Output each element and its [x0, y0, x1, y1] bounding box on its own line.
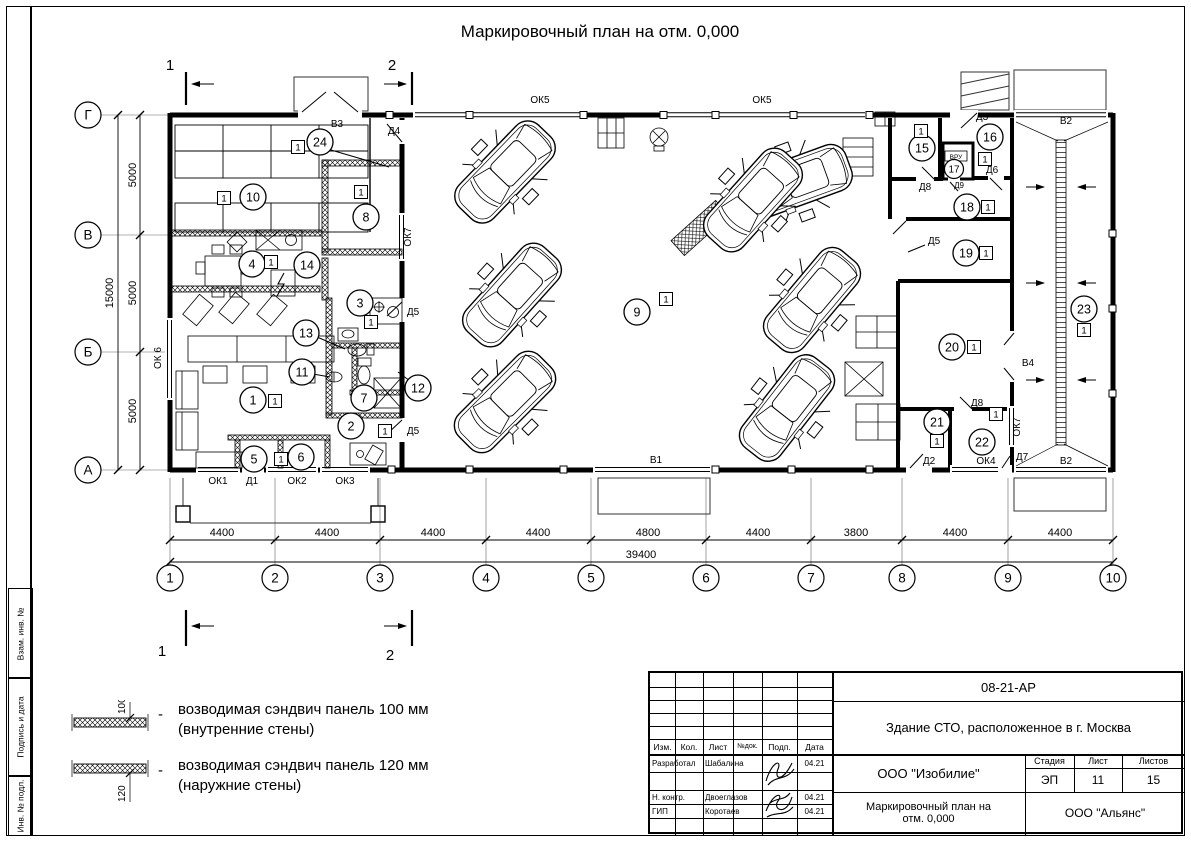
tb-col-data: Дата	[797, 739, 832, 754]
legend-item-120: возводимая сэндвич панель 120 мм (наружн…	[178, 756, 498, 796]
svg-text:ОК7: ОК7	[1012, 417, 1023, 437]
svg-text:Д8: Д8	[919, 182, 932, 193]
tb-col-izm: Изм.	[650, 739, 675, 754]
svg-text:1: 1	[368, 318, 373, 329]
svg-text:ОК3: ОК3	[335, 476, 355, 487]
svg-text:Д8: Д8	[971, 398, 984, 409]
svg-text:Б: Б	[84, 345, 93, 360]
svg-text:ОК2: ОК2	[287, 476, 307, 487]
svg-text:В2: В2	[1060, 116, 1073, 127]
svg-text:19: 19	[959, 246, 973, 260]
svg-text:4400: 4400	[526, 527, 550, 539]
svg-text:9: 9	[634, 305, 641, 319]
svg-text:39400: 39400	[626, 549, 657, 561]
signature-gip	[762, 787, 797, 821]
svg-text:В1: В1	[650, 455, 663, 466]
tb-sheet-value: 11	[1074, 768, 1122, 792]
svg-text:3: 3	[376, 571, 384, 586]
tb-contractor: ООО "Альянс"	[1025, 792, 1185, 834]
svg-text:9: 9	[1004, 571, 1012, 586]
svg-text:ОК5: ОК5	[530, 95, 550, 106]
svg-text:В3: В3	[331, 119, 344, 130]
tb-project-title: Здание СТО, расположенное в г. Москва	[832, 701, 1185, 754]
svg-text:1: 1	[985, 203, 990, 214]
svg-text:5: 5	[251, 452, 258, 466]
svg-text:4400: 4400	[210, 527, 234, 539]
legend-symbol-120: 120	[70, 758, 180, 814]
svg-text:17: 17	[948, 165, 960, 176]
svg-text:4400: 4400	[1048, 527, 1072, 539]
svg-text:1: 1	[382, 427, 387, 438]
svg-text:Д1: Д1	[246, 476, 259, 487]
tb-col-ndok: №док.	[733, 739, 762, 754]
svg-text:20: 20	[945, 340, 959, 354]
svg-text:А: А	[83, 463, 92, 478]
svg-text:11: 11	[296, 365, 309, 379]
tb-name-ncontrol: Двоеглазов	[705, 790, 761, 804]
svg-text:1: 1	[358, 188, 363, 199]
tb-sheet-label: Лист	[1074, 754, 1122, 768]
svg-text:1: 1	[971, 343, 976, 354]
svg-text:100: 100	[117, 700, 128, 714]
svg-text:1: 1	[1081, 326, 1086, 337]
svg-text:7: 7	[361, 391, 368, 405]
title-block: Изм. Кол. Лист №док. Подп. Дата Разработ…	[648, 671, 1183, 834]
svg-text:1: 1	[166, 571, 174, 586]
svg-text:5000: 5000	[127, 163, 139, 187]
svg-text:1: 1	[663, 295, 668, 306]
svg-text:16: 16	[983, 130, 997, 144]
column-bubbles: 1 2 3 4 5 6 7 8 9 10	[157, 565, 1126, 591]
tb-col-kol: Кол.	[675, 739, 703, 754]
svg-text:ОК5: ОК5	[752, 95, 772, 106]
svg-text:В4: В4	[1022, 358, 1035, 369]
svg-text:6: 6	[298, 450, 305, 464]
svg-text:4400: 4400	[421, 527, 445, 539]
svg-text:Д9: Д9	[954, 181, 964, 190]
svg-text:В: В	[83, 228, 92, 243]
tb-sheets-label: Листов	[1122, 754, 1185, 768]
svg-text:13: 13	[299, 326, 313, 340]
svg-text:1: 1	[166, 57, 174, 74]
svg-text:ОК4: ОК4	[976, 456, 996, 467]
svg-text:14: 14	[300, 258, 314, 272]
svg-text:ОК7: ОК7	[403, 227, 414, 247]
legend: 100 - возводимая сэндвич панель 100 мм (…	[70, 694, 500, 824]
svg-text:1: 1	[158, 643, 166, 660]
svg-text:1: 1	[918, 127, 923, 138]
tb-col-podp: Подп.	[762, 739, 797, 754]
svg-text:4400: 4400	[315, 527, 339, 539]
svg-text:18: 18	[960, 200, 974, 214]
svg-text:Д4: Д4	[388, 126, 401, 137]
svg-text:12: 12	[411, 381, 425, 395]
svg-text:В2: В2	[1060, 456, 1073, 467]
svg-text:10: 10	[246, 190, 260, 204]
tb-doc-number: 08-21-АР	[832, 673, 1185, 701]
svg-text:22: 22	[975, 435, 989, 449]
svg-text:1: 1	[993, 410, 998, 421]
svg-text:ОК1: ОК1	[208, 476, 228, 487]
svg-text:4400: 4400	[746, 527, 770, 539]
svg-text:8: 8	[363, 210, 370, 224]
svg-text:Г: Г	[84, 108, 92, 123]
svg-text:8: 8	[898, 571, 906, 586]
svg-text:1: 1	[983, 249, 988, 260]
svg-text:Д5: Д5	[407, 426, 420, 437]
tb-company: ООО "Изобилие"	[832, 754, 1025, 792]
svg-text:4400: 4400	[943, 527, 967, 539]
svg-text:Д2: Д2	[923, 456, 936, 467]
door-leaves	[246, 92, 1010, 468]
svg-text:6: 6	[702, 571, 710, 586]
svg-text:Д3: Д3	[976, 112, 989, 123]
legend-dash: -	[158, 706, 163, 723]
svg-text:5000: 5000	[127, 281, 139, 305]
svg-text:1: 1	[221, 194, 226, 205]
svg-text:15000: 15000	[104, 278, 116, 309]
svg-text:10: 10	[1105, 571, 1120, 586]
svg-text:23: 23	[1077, 302, 1091, 316]
cars	[436, 103, 879, 477]
tb-role-developer: Разработал	[652, 756, 703, 770]
legend-symbol-100: 100	[70, 700, 180, 750]
svg-text:Д7: Д7	[1016, 452, 1029, 463]
svg-text:21: 21	[930, 415, 944, 429]
svg-text:1: 1	[272, 397, 277, 408]
storage-racks	[175, 118, 370, 232]
svg-text:1: 1	[934, 437, 939, 448]
row-bubbles: Г В Б А	[75, 102, 101, 483]
svg-text:2: 2	[386, 647, 394, 664]
svg-text:2: 2	[271, 571, 279, 586]
svg-text:4: 4	[249, 257, 256, 271]
tb-role-ncontrol: Н. контр.	[652, 790, 703, 804]
svg-text:Д5: Д5	[407, 307, 420, 318]
svg-text:24: 24	[313, 135, 327, 149]
tb-sheet-title: Маркировочный план на отм. 0,000	[832, 792, 1025, 834]
svg-text:Д6: Д6	[986, 165, 999, 176]
tb-date-developer: 04.21	[797, 756, 832, 770]
svg-text:120: 120	[117, 785, 128, 802]
tb-date-gip: 04.21	[797, 804, 832, 818]
legend-dash: -	[158, 762, 163, 779]
svg-text:1: 1	[250, 393, 257, 407]
corridor-ramp	[1016, 122, 1108, 466]
legend-item-100: возводимая сэндвич панель 100 мм (внутре…	[178, 700, 498, 740]
tb-stage-value: ЭП	[1025, 768, 1074, 792]
tb-sheets-value: 15	[1122, 768, 1185, 792]
svg-text:2: 2	[348, 419, 355, 433]
svg-text:5000: 5000	[127, 399, 139, 423]
tb-date-ncontrol: 04.21	[797, 790, 832, 804]
svg-text:2: 2	[388, 57, 396, 74]
svg-text:1: 1	[295, 143, 300, 154]
svg-text:7: 7	[807, 571, 815, 586]
tb-name-developer: Шабалина	[705, 756, 761, 770]
svg-text:15: 15	[915, 141, 929, 155]
tb-role-gip: ГИП	[652, 804, 703, 818]
svg-text:5: 5	[587, 571, 595, 586]
tb-col-list: Лист	[703, 739, 733, 754]
svg-text:1: 1	[982, 155, 987, 166]
svg-text:4800: 4800	[636, 527, 660, 539]
tb-name-gip: Коротаев	[705, 804, 761, 818]
svg-text:ОК 6: ОК 6	[153, 347, 164, 369]
svg-text:Д5: Д5	[928, 236, 941, 247]
svg-text:3: 3	[357, 296, 364, 310]
tb-stage-label: Стадия	[1025, 754, 1074, 768]
signature-developer	[762, 755, 797, 790]
svg-text:3800: 3800	[844, 527, 868, 539]
svg-text:1: 1	[268, 258, 273, 269]
svg-text:4: 4	[482, 571, 490, 586]
svg-text:1: 1	[278, 455, 283, 466]
